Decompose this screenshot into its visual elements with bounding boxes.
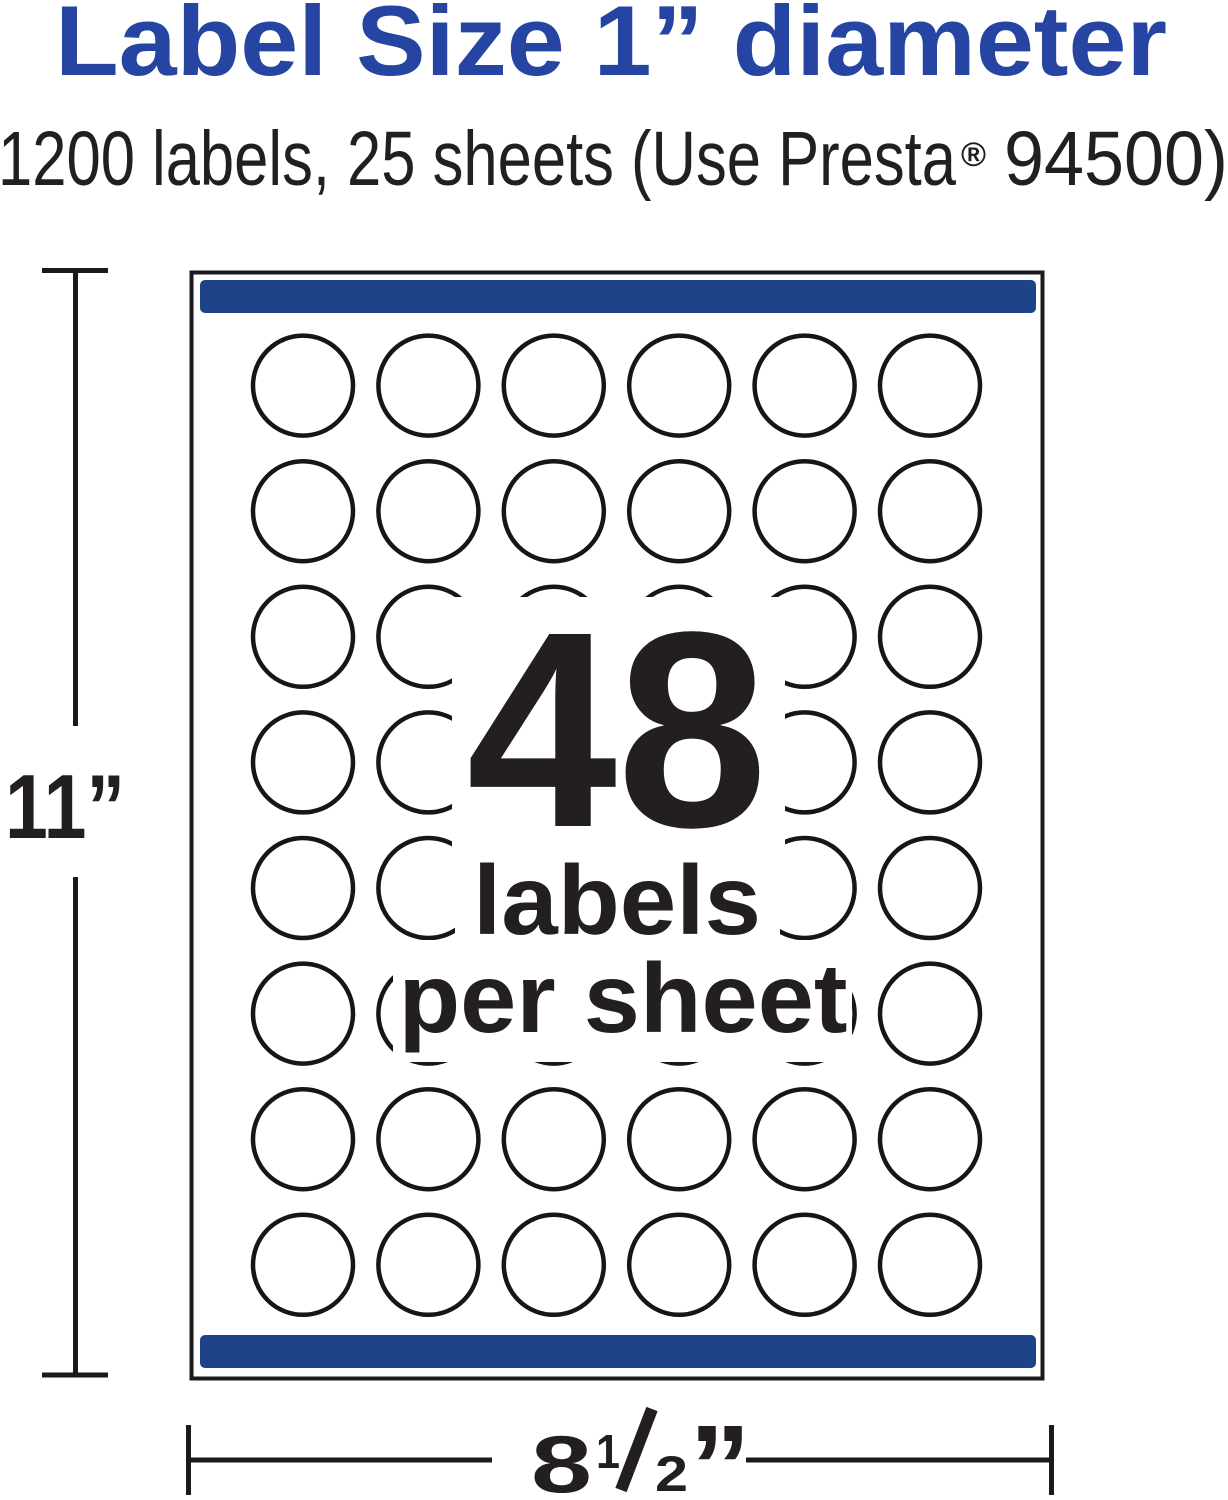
- svg-text:labels: labels: [473, 845, 761, 955]
- svg-text:per sheet: per sheet: [399, 943, 848, 1053]
- svg-text:8: 8: [531, 1420, 592, 1500]
- svg-text:”: ”: [689, 1401, 751, 1500]
- svg-text:Label Size 1” diameter: Label Size 1” diameter: [55, 0, 1167, 96]
- svg-text:48: 48: [467, 574, 768, 886]
- svg-text:11”: 11”: [5, 757, 125, 858]
- svg-text:94500): 94500): [1004, 116, 1228, 202]
- svg-text:2: 2: [655, 1446, 688, 1500]
- svg-text:1200 labels, 25 sheets (Use Pr: 1200 labels, 25 sheets (Use Presta: [0, 116, 956, 202]
